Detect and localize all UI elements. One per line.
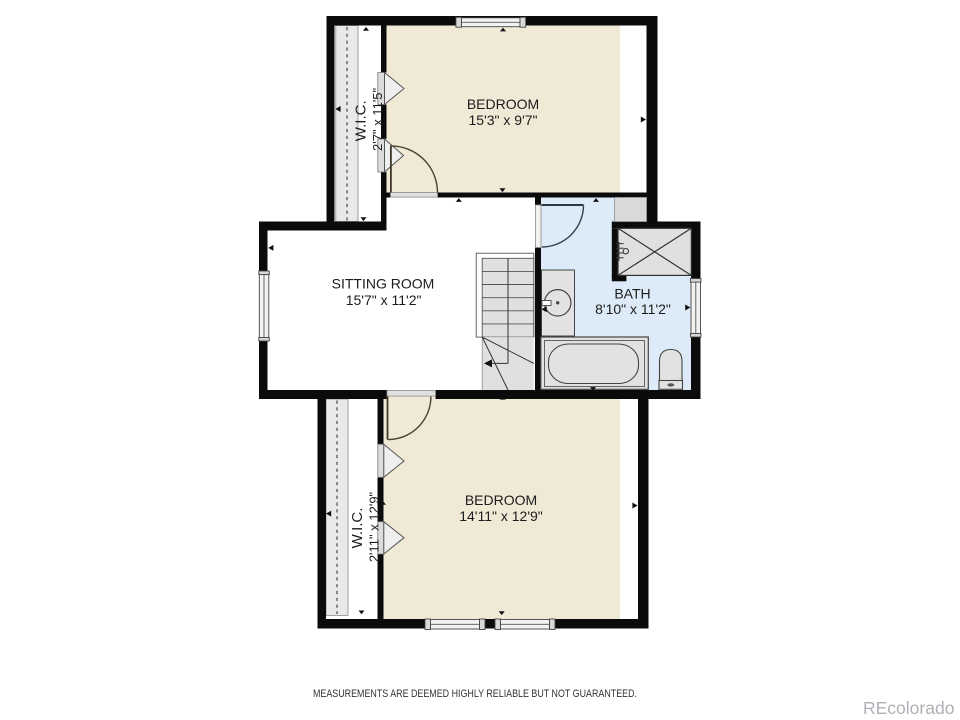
svg-text:15'7" x 11'2": 15'7" x 11'2" [346,292,422,308]
svg-text:8'10" x 11'2": 8'10" x 11'2" [595,301,671,317]
svg-text:SITTING ROOM: SITTING ROOM [332,276,435,292]
svg-text:2'7" x 11'5": 2'7" x 11'5" [370,87,385,150]
svg-text:W.I.C.: W.I.C. [352,100,369,141]
svg-text:15'3" x 9'7": 15'3" x 9'7" [469,112,538,128]
svg-text:W.I.C.: W.I.C. [349,508,366,549]
svg-text:2'11" x 12'9": 2'11" x 12'9" [367,491,382,562]
svg-text:REcolorado: REcolorado [863,698,954,718]
svg-text:14'11" x 12'9": 14'11" x 12'9" [459,508,543,524]
svg-text:MEASUREMENTS ARE DEEMED HIGHLY: MEASUREMENTS ARE DEEMED HIGHLY RELIABLE … [313,688,637,700]
svg-text:BATH: BATH [614,286,650,302]
svg-text:BEDROOM: BEDROOM [465,492,537,508]
svg-text:BEDROOM: BEDROOM [467,96,539,112]
